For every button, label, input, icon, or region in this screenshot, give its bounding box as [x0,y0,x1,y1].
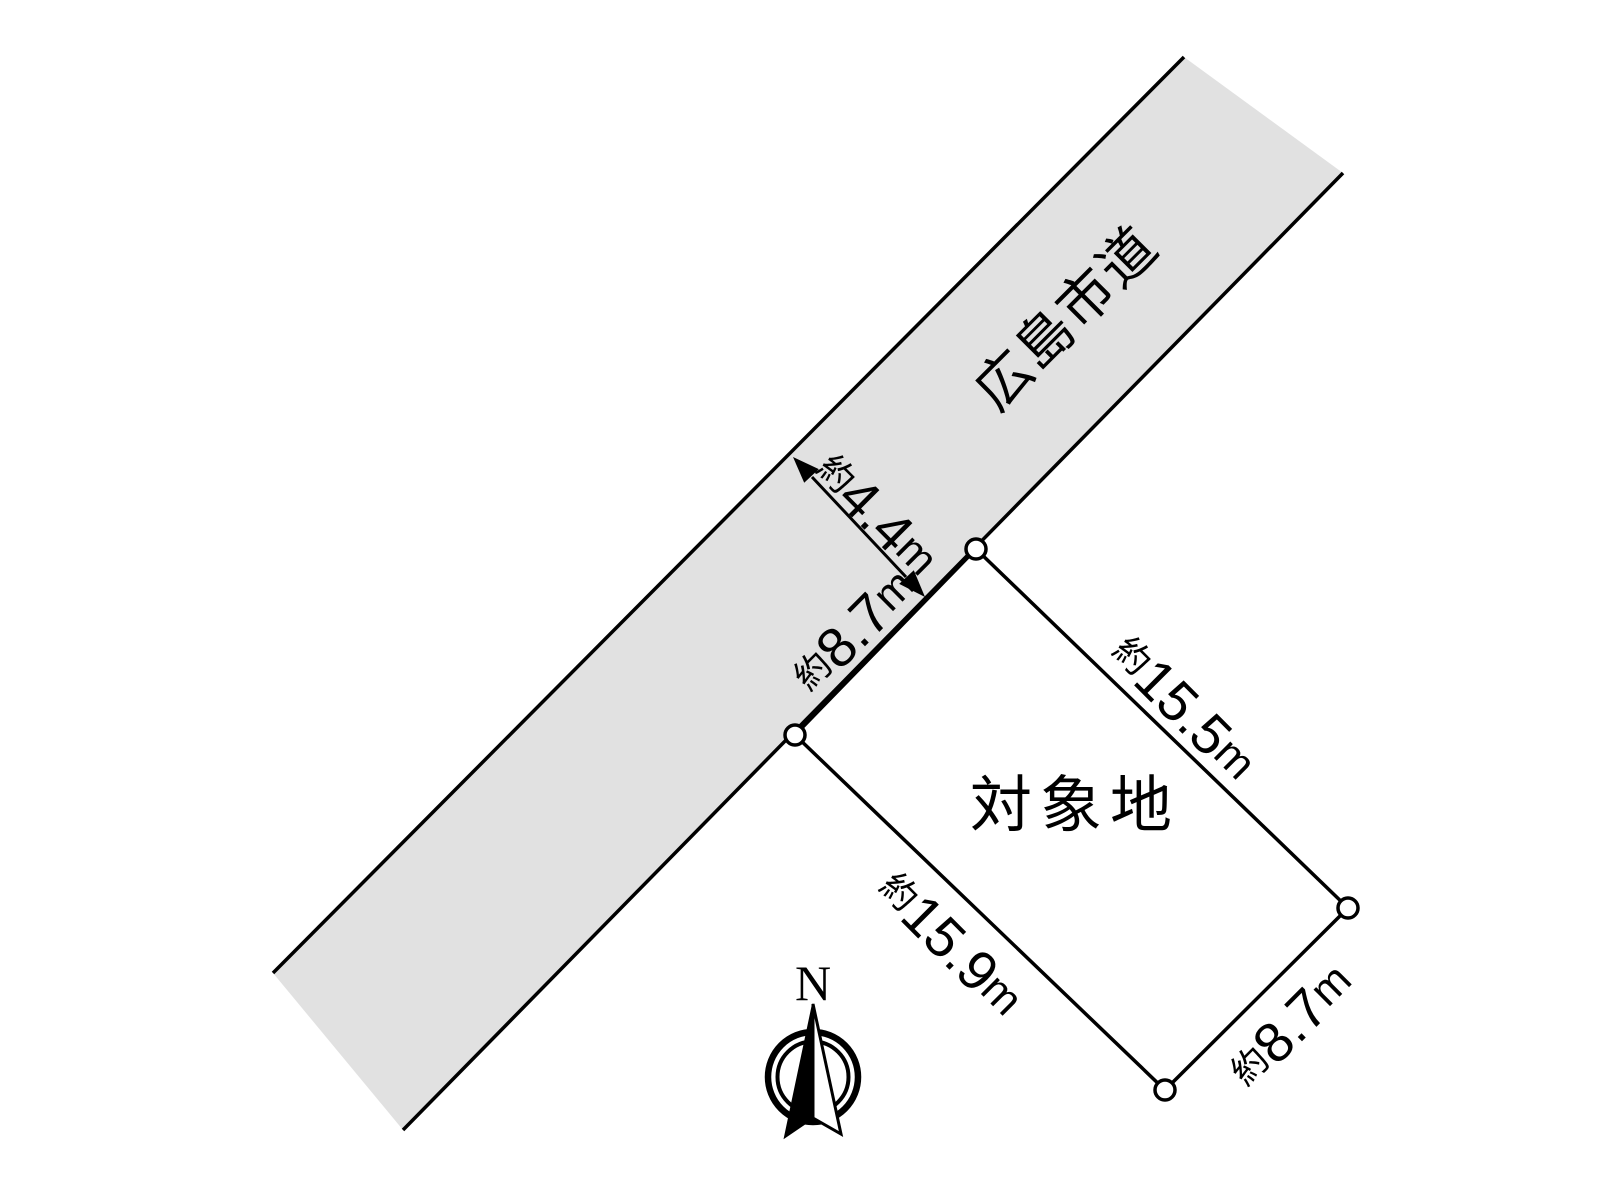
site-name-label: 対象地 [970,772,1180,841]
compass-north-label: N [795,955,831,1011]
land-plot-diagram: 広島市道 約4.4m 約8.7m 約15.5m 約15.9m 約8.7m 対象地… [0,0,1600,1200]
vertex-marker-south [1155,1080,1175,1100]
edge-ne-measurement-label: 約15.5m [1097,620,1270,793]
vertex-marker-north [966,539,986,559]
vertex-marker-east [1338,898,1358,918]
vertex-marker-west [785,725,805,745]
compass-needle-right-icon [813,1004,841,1134]
diagram-canvas: 広島市道 約4.4m 約8.7m 約15.5m 約15.9m 約8.7m 対象地… [0,0,1600,1200]
compass: N [768,955,858,1137]
compass-needle-left-icon [785,1004,813,1137]
edge-se-measurement-label: 約8.7m [1215,950,1366,1101]
